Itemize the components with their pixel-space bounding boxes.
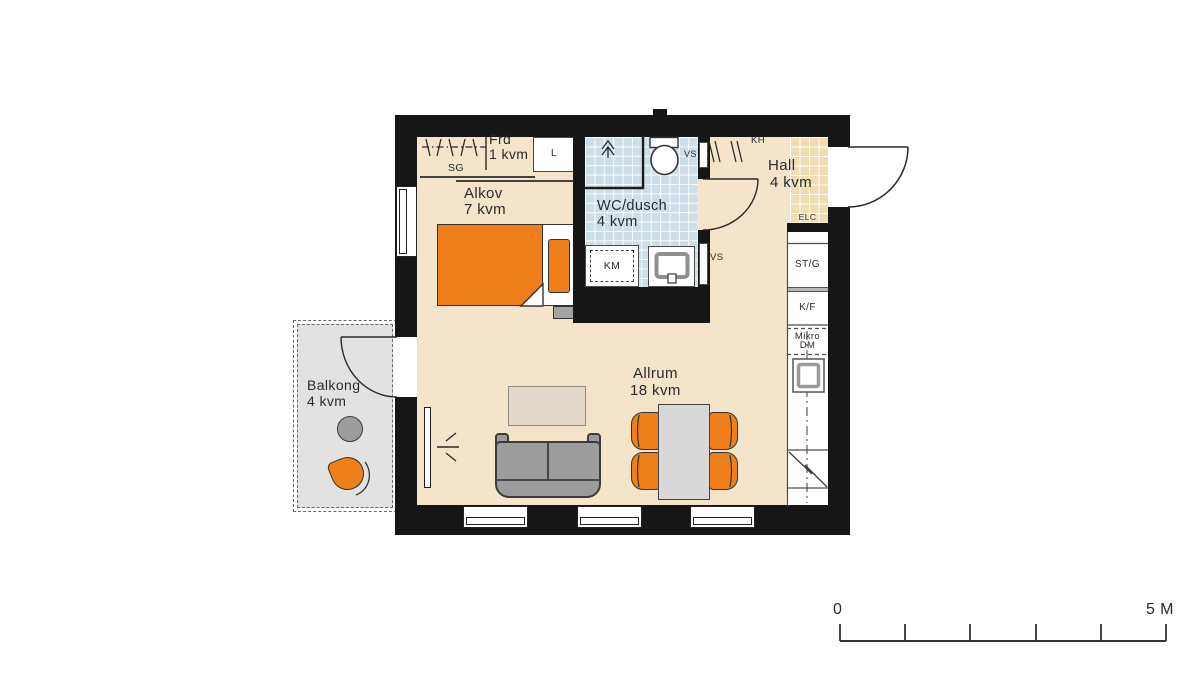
- vs-upper-label: VS: [684, 150, 697, 159]
- balkong-area-label: 4 kvm: [307, 394, 346, 408]
- coffee-table-icon: [508, 386, 586, 426]
- dining-chair-icon: [709, 452, 738, 490]
- alkov-area-label: 7 kvm: [464, 202, 506, 217]
- balkong-label: Balkong: [307, 378, 360, 392]
- wc-door-opening: [698, 179, 710, 230]
- scale-end-label: 5 M: [1146, 602, 1174, 618]
- wc-label: WC/dusch: [597, 199, 667, 214]
- sofa-icon: [495, 441, 601, 498]
- dining-chair-icon: [631, 412, 660, 450]
- kf-label: K/F: [787, 303, 828, 313]
- window: [463, 506, 528, 528]
- frd-area-label: 1 kvm: [489, 147, 528, 161]
- kh-label: KH: [751, 136, 765, 146]
- window: [577, 506, 642, 528]
- dining-table-icon: [658, 404, 710, 500]
- allrum-label: Allrum: [633, 366, 678, 381]
- vs-shaft-lower: [699, 243, 708, 285]
- hall-area-label: 4 kvm: [770, 175, 812, 190]
- floor-plan: Frd 1 kvm SG L Alkov 7 kvm WC/dusch 4 kv…: [0, 0, 1200, 675]
- wall-marker-tick: [653, 109, 667, 116]
- allrum-area-label: 18 kvm: [630, 383, 681, 398]
- window: [690, 506, 755, 528]
- dm-label: DM: [787, 341, 828, 351]
- kitchen-cabinet-column: [787, 232, 828, 505]
- wall-wc-south: [573, 287, 710, 323]
- elc-label: ELC: [787, 213, 828, 222]
- scale-bar: [840, 624, 1166, 641]
- vs-shaft-upper: [699, 142, 708, 168]
- vs-lower-label: VS: [710, 253, 723, 263]
- wall-hall-kitchen: [787, 223, 828, 232]
- entrance-door-opening: [828, 147, 850, 207]
- entrance-door-swing-icon: [848, 147, 908, 207]
- bed-blanket-icon: [437, 224, 543, 306]
- washbasin-icon: [648, 246, 695, 287]
- window: [396, 186, 417, 257]
- balcony-door-opening: [395, 337, 417, 397]
- nightstand-icon: [553, 306, 575, 319]
- frd-label: Frd: [489, 132, 511, 146]
- pillow-icon: [548, 239, 570, 293]
- dining-chair-icon: [709, 412, 738, 450]
- wall-wc-west: [573, 137, 585, 287]
- dining-chair-icon: [631, 452, 660, 490]
- linen-closet-label: L: [533, 149, 575, 159]
- stg-label: ST/G: [787, 260, 828, 270]
- scale-start-label: 0: [833, 602, 842, 618]
- hall-label: Hall: [768, 158, 795, 173]
- alkov-label: Alkov: [464, 186, 503, 201]
- wall-left: [395, 115, 417, 535]
- km-label: KM: [585, 261, 639, 272]
- sg-label: SG: [448, 163, 464, 174]
- wc-area-label: 4 kvm: [597, 215, 638, 230]
- window: [424, 407, 431, 488]
- kitchen-worktop-band: [787, 287, 828, 292]
- wall-top: [395, 115, 850, 137]
- balcony-table-icon: [337, 416, 363, 442]
